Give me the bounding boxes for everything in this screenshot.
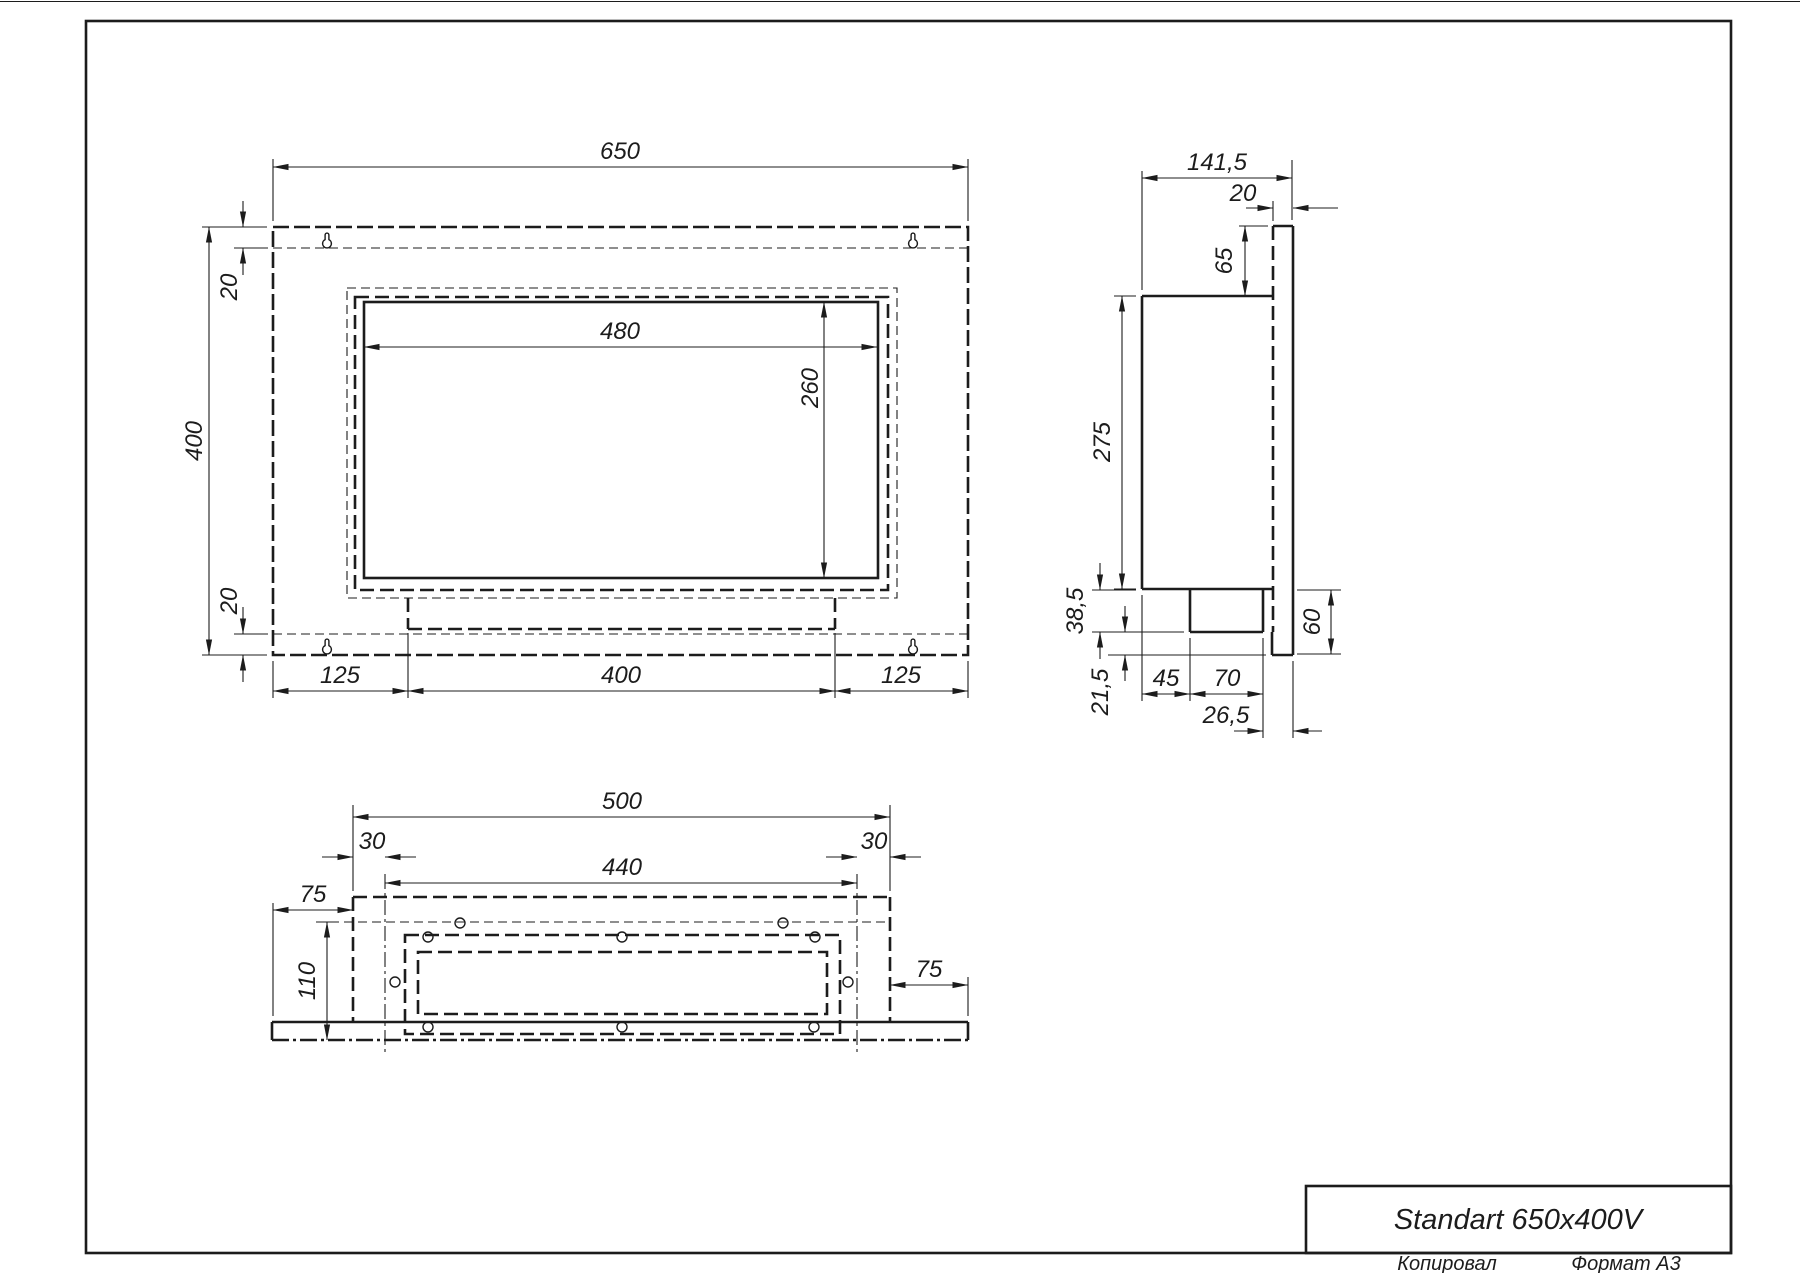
dim-opening-height: 260 [797, 367, 824, 409]
dim-base-height: 60 [1299, 608, 1326, 635]
dim-side-depth: 141,5 [1187, 149, 1248, 176]
dim-back-clearance: 45 [1153, 665, 1180, 692]
dim-flange-right: 75 [916, 956, 943, 983]
side-view: 141,5 20 65 275 38,5 21,5 [1062, 149, 1341, 738]
title-block: Standart 650x400V Копировал Формат А3 [1306, 1186, 1731, 1273]
drawing-frame [0, 2, 1800, 1254]
dim-shelf-drop: 38,5 [1062, 587, 1089, 634]
side-view-dimensions: 141,5 20 65 275 38,5 21,5 [1062, 149, 1341, 738]
dim-hole-span: 440 [602, 854, 643, 881]
dim-front-height: 400 [181, 420, 208, 461]
drawing-sheet: 650 400 20 20 480 260 125 [0, 0, 1800, 1273]
drawing-title: Standart 650x400V [1394, 1204, 1645, 1236]
burner-outer-outline [405, 935, 840, 1034]
dim-box-height: 275 [1089, 421, 1116, 463]
burner-inner-outline [418, 952, 827, 1014]
dim-tray-depth: 70 [1214, 665, 1241, 692]
dim-margin-left: 125 [320, 662, 361, 689]
dim-box-width: 500 [602, 788, 643, 815]
bottom-view-dimensions: 500 30 30 440 75 75 110 [273, 788, 968, 1040]
dim-lip-height: 21,5 [1087, 668, 1114, 716]
stamp-format-label: Формат А3 [1571, 1253, 1680, 1273]
drawing-canvas: 650 400 20 20 480 260 125 [0, 0, 1800, 1273]
front-view: 650 400 20 20 480 260 125 [181, 138, 968, 698]
dim-panel-thickness: 20 [1229, 180, 1257, 207]
dim-front-flange-bottom: 20 [216, 587, 243, 615]
front-view-dimensions: 650 400 20 20 480 260 125 [181, 138, 968, 698]
border-frame [86, 21, 1731, 1253]
dim-top-offset: 65 [1211, 247, 1238, 274]
dim-burner-width: 400 [601, 662, 642, 689]
dim-hole-offset-right: 30 [861, 828, 888, 855]
dim-front-clearance: 26,5 [1202, 702, 1250, 729]
dim-front-width: 650 [600, 138, 641, 165]
stamp-copied-label: Копировал [1397, 1253, 1496, 1273]
dim-margin-right: 125 [881, 662, 922, 689]
dim-depth: 110 [294, 961, 321, 1000]
dim-flange-left: 75 [300, 881, 327, 908]
bottom-view: 500 30 30 440 75 75 110 [272, 788, 968, 1052]
mounting-holes [390, 918, 853, 1032]
dim-front-flange-top: 20 [216, 273, 243, 301]
dim-opening-width: 480 [600, 318, 641, 345]
dim-hole-offset-left: 30 [359, 828, 386, 855]
